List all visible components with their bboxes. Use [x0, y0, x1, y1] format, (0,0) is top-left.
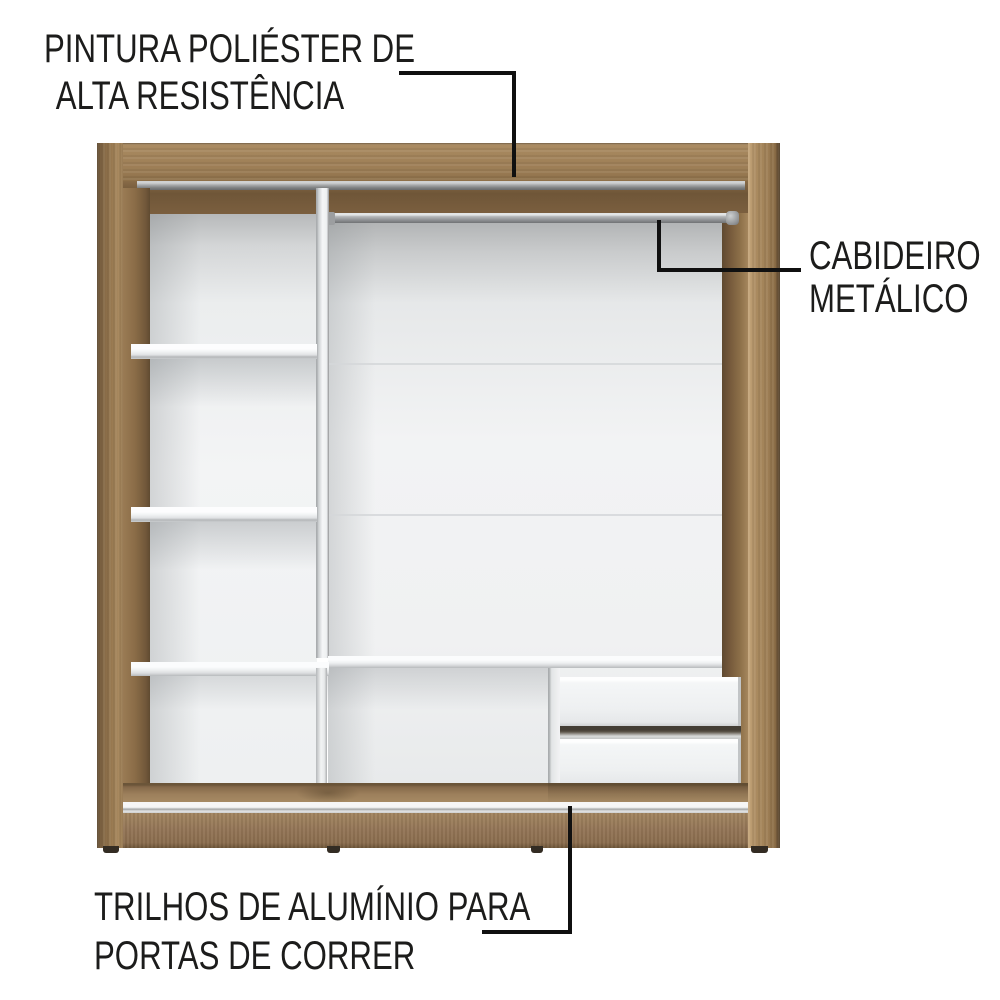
rod-callout-line-horizontal: [657, 268, 801, 272]
rails-callout-line-vertical: [568, 806, 572, 934]
base-panel: [97, 813, 780, 848]
lower-divider: [316, 668, 327, 801]
floor-shadow: [296, 783, 360, 803]
shelf-shadow: [150, 522, 317, 570]
center-divider: [316, 188, 329, 658]
floor-shadow: [548, 783, 748, 803]
hanging-rod: [330, 213, 737, 223]
interior-left-side-wood: [123, 188, 150, 788]
shelf-shadow: [150, 359, 317, 407]
upper-door-track: [137, 181, 745, 190]
annotation-paint-line2: ALTA RESISTÊNCIA: [44, 73, 356, 120]
foot: [531, 846, 543, 853]
back-panel-seam: [328, 363, 722, 365]
rails-callout-line-horizontal: [482, 930, 572, 934]
rod-endcap: [726, 211, 739, 225]
back-panel-seam: [328, 514, 722, 516]
shelf-upper: [131, 344, 317, 359]
shelf-middle: [131, 507, 317, 522]
foot: [751, 846, 768, 853]
long-shelf-left: [131, 662, 329, 676]
left-side-panel: [97, 143, 123, 848]
right-side-panel: [748, 143, 780, 848]
annotation-paint-line1: PINTURA POLIÉSTER DE: [44, 26, 356, 73]
annotation-rails: TRILHOS DE ALUMÍNIO PARA PORTAS DE CORRE…: [94, 883, 406, 981]
paint-callout-line-vertical: [512, 71, 516, 177]
annotation-rails-line2: PORTAS DE CORRER: [94, 932, 406, 981]
annotation-paint: PINTURA POLIÉSTER DE ALTA RESISTÊNCIA: [44, 26, 356, 120]
annotation-rod-line2: METÁLICO: [809, 278, 965, 321]
paint-callout-line-horizontal: [399, 71, 516, 75]
drawer-upper: [560, 677, 741, 726]
rod-callout-line-vertical: [657, 220, 661, 272]
foot: [327, 846, 340, 853]
annotation-rod: CABIDEIRO METÁLICO: [809, 235, 965, 321]
annotation-rod-line1: CABIDEIRO: [809, 235, 965, 278]
drawer-lower: [560, 739, 741, 787]
long-shelf-right: [328, 656, 722, 668]
foot: [103, 846, 119, 853]
annotation-rails-line1: TRILHOS DE ALUMÍNIO PARA: [94, 883, 406, 932]
top-panel: [97, 143, 780, 181]
drawer-gap-shadow: [560, 726, 741, 739]
wardrobe-product-diagram: PINTURA POLIÉSTER DE ALTA RESISTÊNCIA CA…: [0, 0, 1000, 1000]
